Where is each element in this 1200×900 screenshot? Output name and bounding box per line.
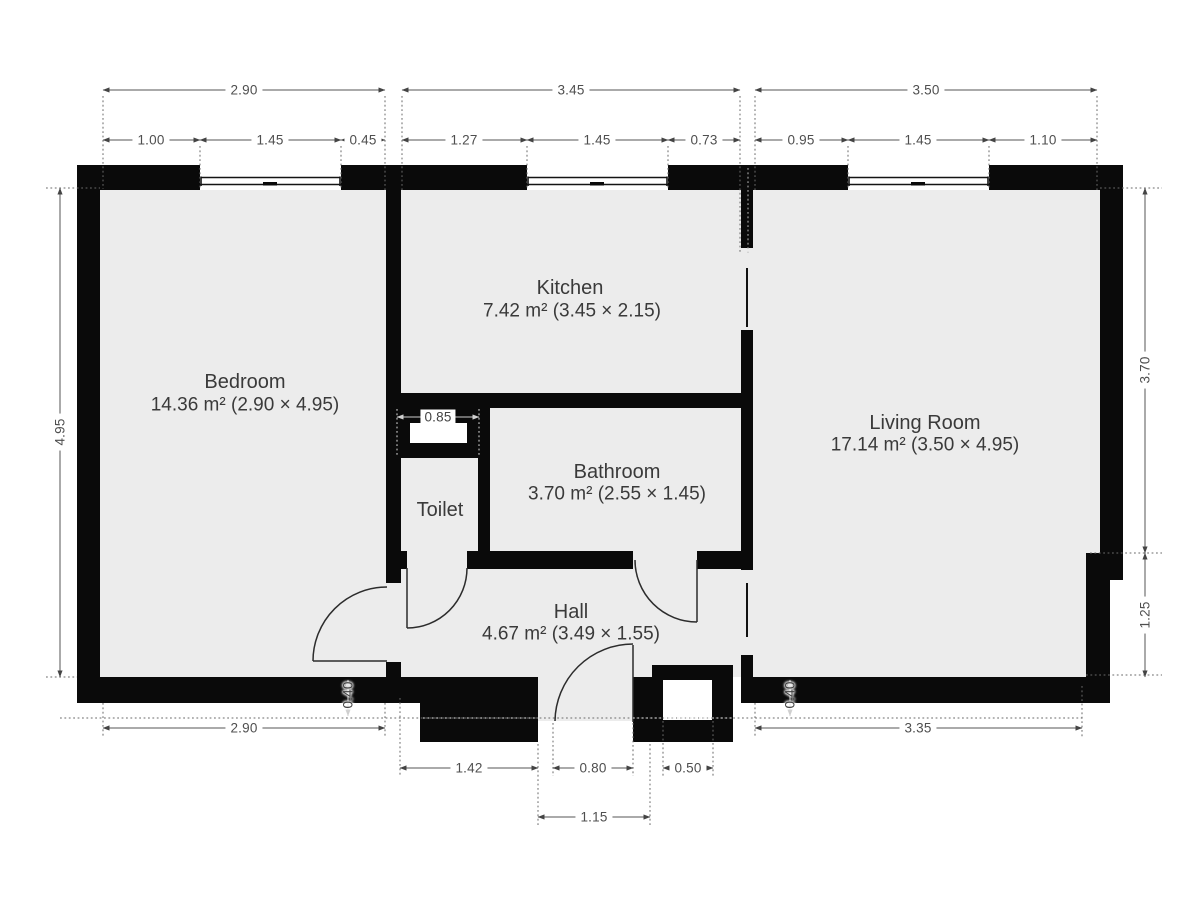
room-label-bedroom: Bedroom <box>204 370 285 394</box>
room-area-bathroom: 3.70 m² (2.55 × 1.45) <box>528 484 706 507</box>
room-label-toilet: Toilet <box>417 498 464 522</box>
room-label-living-room: Living Room <box>869 411 980 435</box>
entrance-shaft <box>663 680 712 720</box>
room-area-bedroom: 14.36 m² (2.90 × 4.95) <box>151 395 340 418</box>
dim-bottom-seg-1: 1.42 <box>450 761 487 776</box>
dim-top-seg-3: 0.45 <box>344 133 381 148</box>
wall-hall-top-b <box>467 551 633 569</box>
window-kitchen <box>527 166 668 190</box>
toilet-shaft <box>410 423 467 443</box>
window-living-room <box>848 166 989 190</box>
floor-bedroom-doorway <box>386 583 401 662</box>
floor-plan: Bedroom 14.36 m² (2.90 × 4.95) Kitchen 7… <box>0 0 1200 900</box>
wall-kitchen-bathroom <box>386 393 753 408</box>
wall-bedroom-divider-stub <box>386 662 401 677</box>
room-area-hall: 4.67 m² (3.49 × 1.55) <box>482 624 660 647</box>
dim-top-overall-1: 2.90 <box>225 83 262 98</box>
wall-bedroom-divider <box>386 190 401 583</box>
room-label-bathroom: Bathroom <box>574 460 661 484</box>
wall-bottom-bedroom <box>77 677 420 703</box>
wall-right-upper <box>1100 165 1123 553</box>
floor-entrance-doorway <box>538 677 633 721</box>
dim-top-seg-5: 1.45 <box>578 133 615 148</box>
dim-top-seg-4: 1.27 <box>445 133 482 148</box>
dim-top-seg-1: 1.00 <box>132 133 169 148</box>
window-bedroom <box>200 166 341 190</box>
dim-bottom-bedroom: 2.90 <box>225 721 262 736</box>
room-label-kitchen: Kitchen <box>537 276 604 300</box>
dim-top-overall-2: 3.45 <box>552 83 589 98</box>
dim-bottom-seg-2: 0.80 <box>574 761 611 776</box>
dim-offset-right: 0.40 <box>783 676 798 713</box>
dim-right-lower: 1.25 <box>1138 596 1153 633</box>
windows <box>200 166 989 190</box>
dim-right-upper: 3.70 <box>1138 351 1153 388</box>
dim-bottom-seg-3: 0.50 <box>669 761 706 776</box>
wall-right-lower <box>1086 553 1110 677</box>
wall-top-3 <box>668 165 848 190</box>
wall-vestibule-left <box>420 677 538 742</box>
wall-vestibule-top <box>652 665 733 679</box>
dim-top-seg-8: 1.45 <box>899 133 936 148</box>
dim-top-seg-2: 1.45 <box>251 133 288 148</box>
room-area-living-room: 17.14 m² (3.50 × 4.95) <box>831 435 1020 458</box>
dim-offset-left: 0.40 <box>341 676 356 713</box>
dim-bottom-living: 3.35 <box>899 721 936 736</box>
floor-bedroom <box>100 190 386 677</box>
wall-toilet-bathroom <box>478 408 490 569</box>
wall-top-2 <box>341 165 527 190</box>
dim-top-seg-9: 1.10 <box>1024 133 1061 148</box>
dim-top-seg-7: 0.95 <box>782 133 819 148</box>
dim-toilet-shaft: 0.85 <box>420 410 455 425</box>
dim-top-seg-6: 0.73 <box>685 133 722 148</box>
room-area-kitchen: 7.42 m² (3.45 × 2.15) <box>483 301 661 324</box>
dim-bottom-entry-width: 1.15 <box>575 810 612 825</box>
dim-top-overall-3: 3.50 <box>907 83 944 98</box>
wall-left <box>77 165 100 703</box>
wall-living-divider-1 <box>741 190 753 248</box>
wall-living-divider-3 <box>741 655 753 677</box>
wall-living-divider-2 <box>741 330 753 570</box>
dim-left-height: 4.95 <box>53 413 68 450</box>
wall-hall-top-a <box>386 551 407 569</box>
room-label-hall: Hall <box>554 600 588 624</box>
